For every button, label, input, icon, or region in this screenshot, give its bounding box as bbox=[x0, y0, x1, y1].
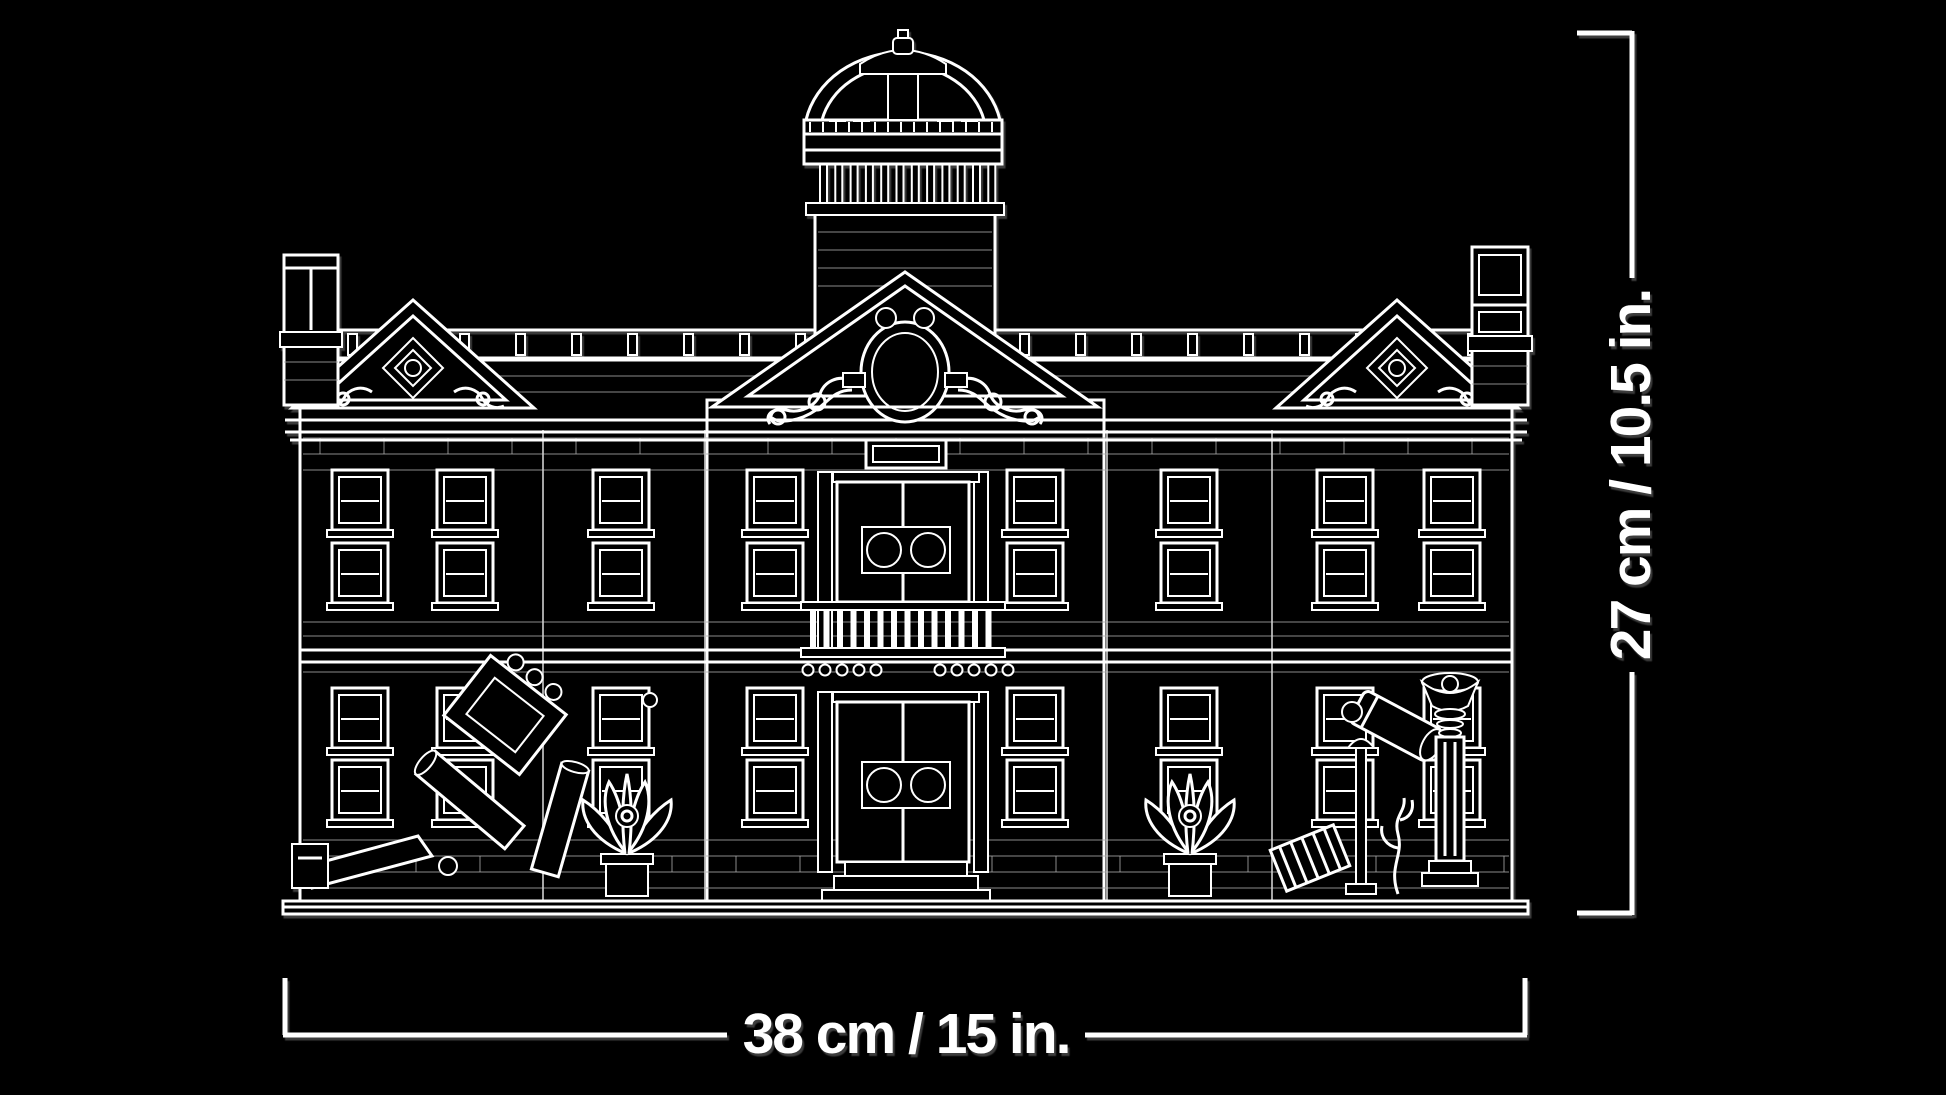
facade-line-art-canvas: 38 cm / 15 in. 27 cm / 10.5 in. bbox=[0, 0, 1946, 1095]
product-dimension-diagram: 38 cm / 15 in. 27 cm / 10.5 in. bbox=[0, 0, 1946, 1095]
pediment-medallion bbox=[914, 308, 934, 328]
height-dimension-label: 27 cm / 10.5 in. bbox=[1599, 290, 1663, 660]
porthole-window bbox=[911, 533, 945, 567]
width-dimension-label: 38 cm / 15 in. bbox=[743, 1002, 1070, 1066]
pediment-medallion bbox=[876, 308, 896, 328]
dome bbox=[806, 30, 1000, 120]
drum-colonnade bbox=[820, 163, 995, 203]
lower-double-door bbox=[818, 692, 988, 872]
dome-finial bbox=[898, 30, 908, 38]
central-pediment bbox=[712, 272, 1098, 424]
porthole-window bbox=[867, 768, 901, 802]
building-facade bbox=[280, 30, 1532, 914]
entry-steps bbox=[822, 862, 990, 904]
base-sidewalk bbox=[283, 901, 1528, 914]
porthole-window bbox=[867, 533, 901, 567]
chimney-right bbox=[1468, 247, 1532, 405]
chimney-left bbox=[280, 255, 342, 405]
porthole-window bbox=[911, 768, 945, 802]
